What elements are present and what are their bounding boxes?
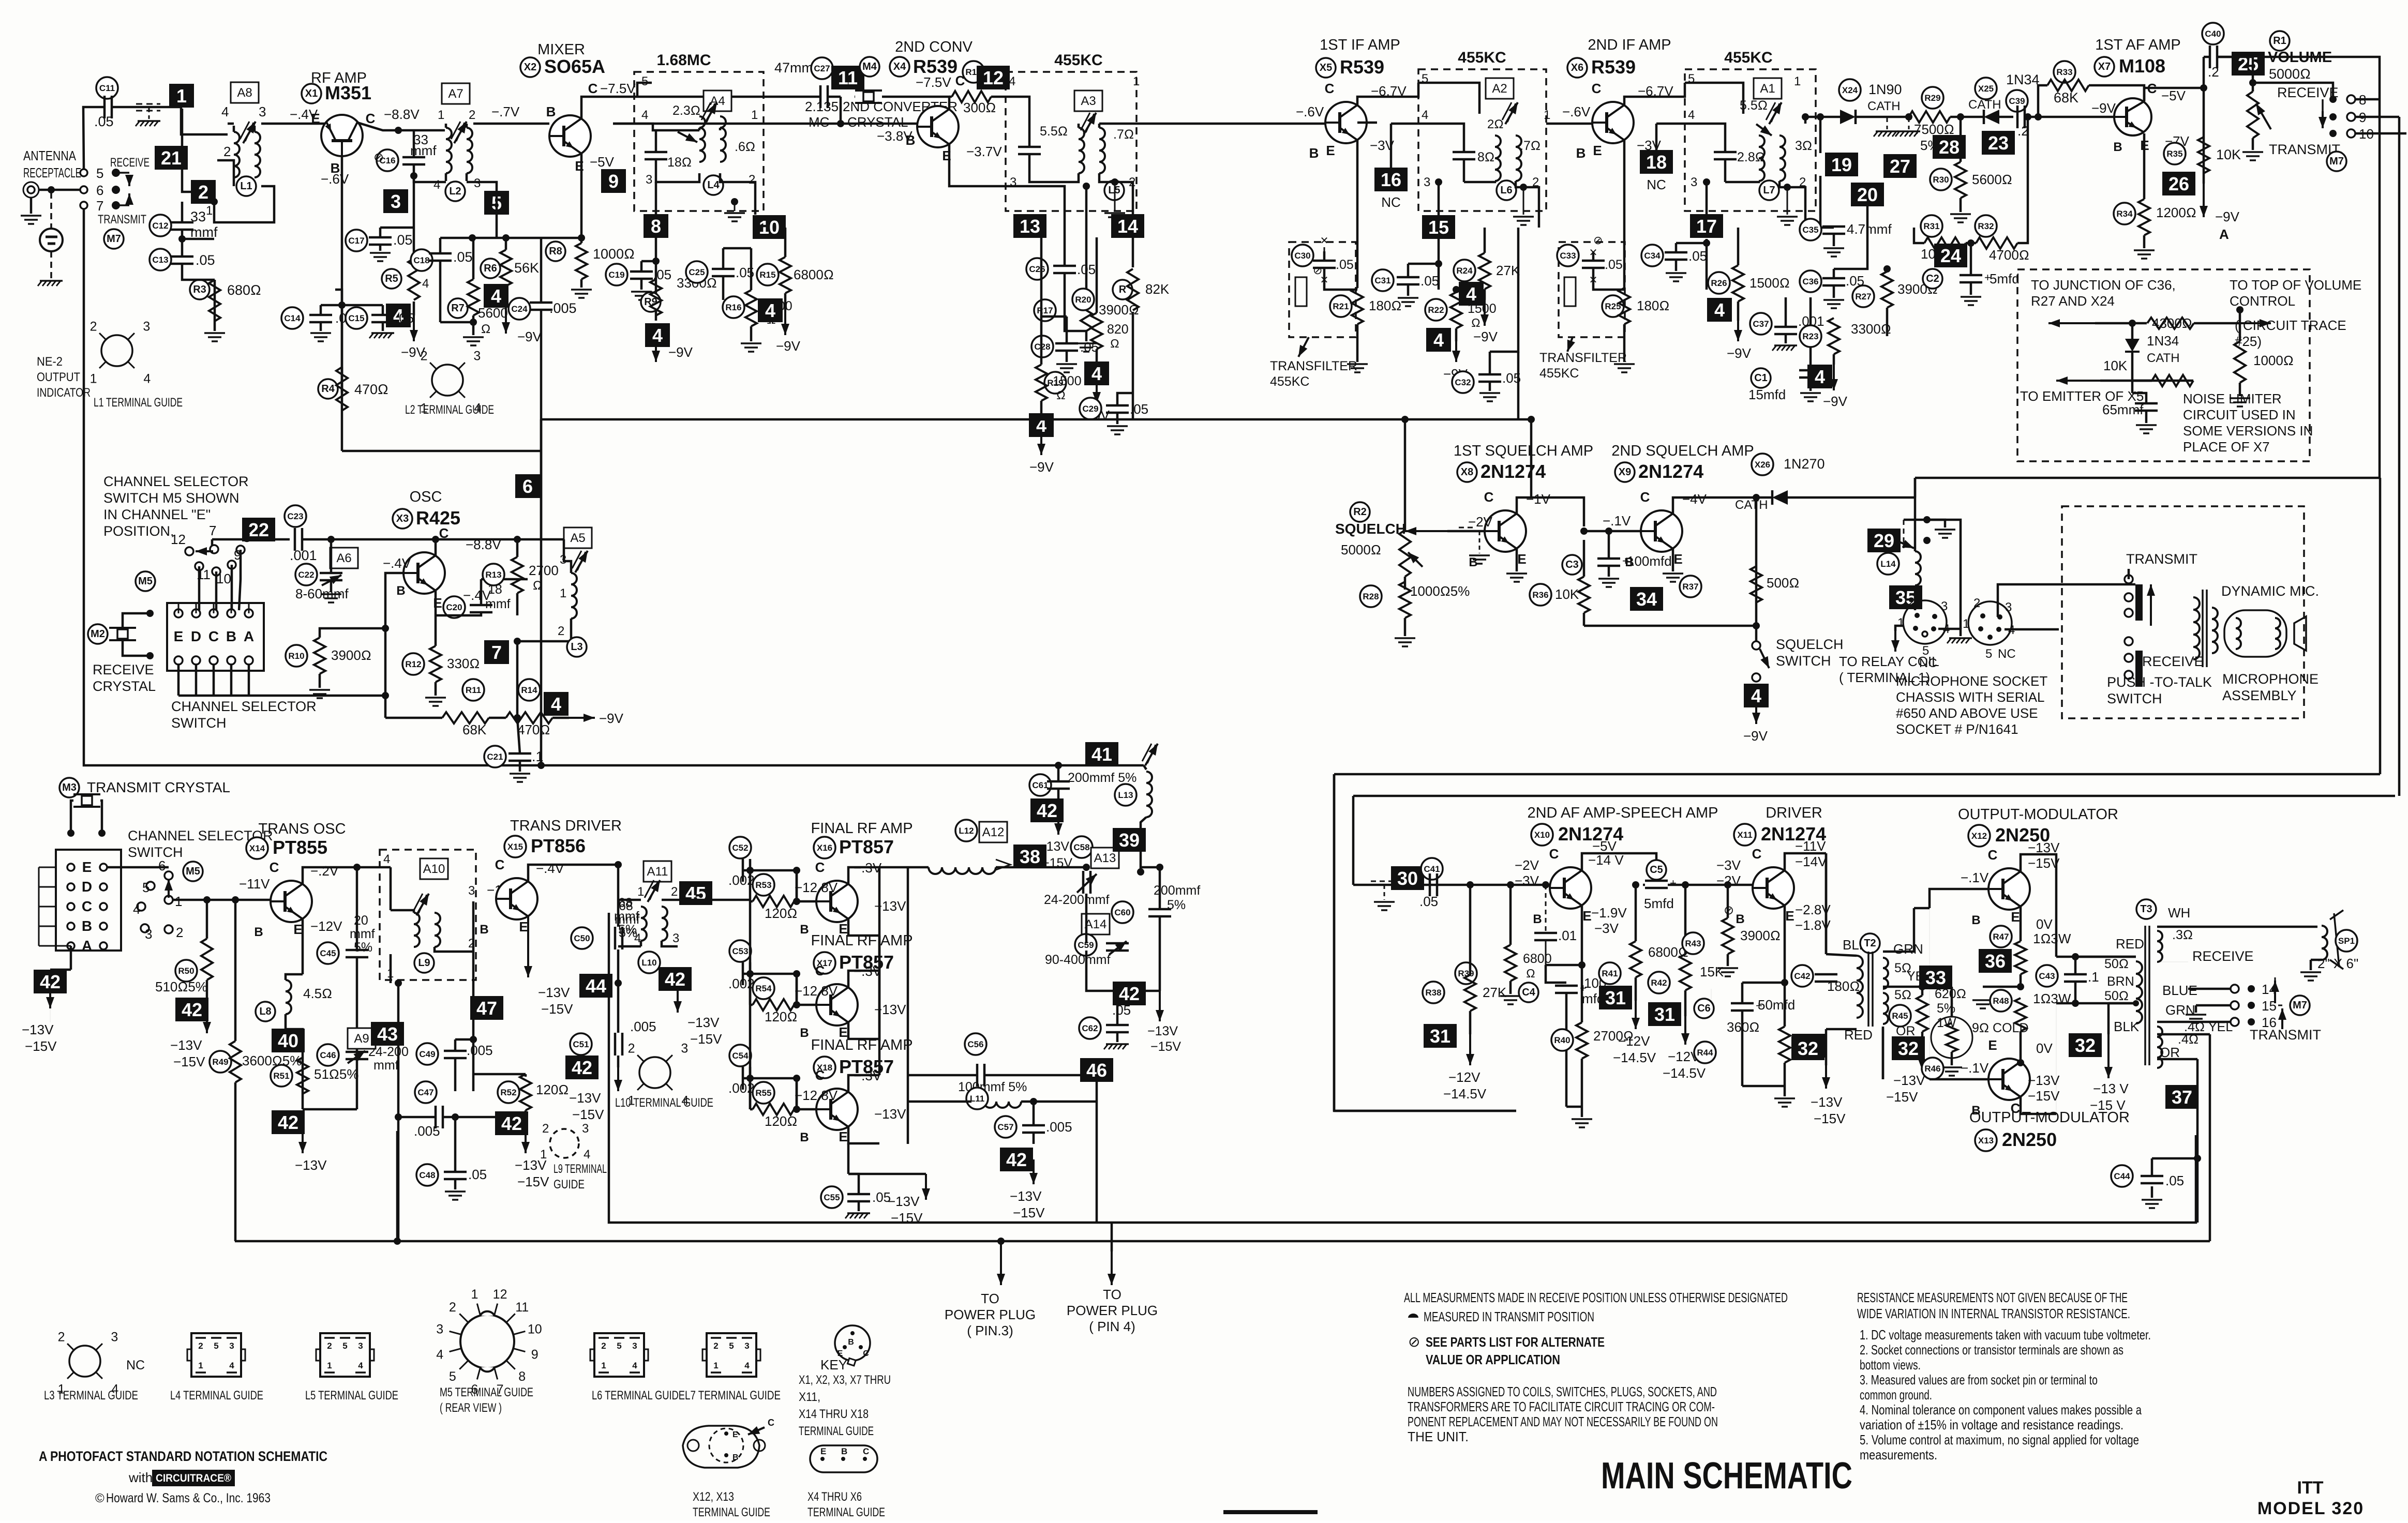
svg-text:C: C — [495, 857, 505, 872]
svg-text:−14V: −14V — [1795, 854, 1827, 869]
svg-text:POWER PLUG: POWER PLUG — [1067, 1303, 1158, 1318]
svg-text:C39: C39 — [2009, 96, 2025, 106]
svg-text:1: 1 — [637, 885, 644, 899]
svg-text:−5V: −5V — [2161, 88, 2186, 103]
svg-text:.005: .005 — [467, 1043, 493, 1058]
svg-text:SQUELCH: SQUELCH — [1335, 521, 1406, 537]
svg-text:CATH: CATH — [2147, 351, 2180, 365]
svg-text:5: 5 — [641, 74, 648, 88]
svg-text:3300Ω: 3300Ω — [1851, 321, 1891, 337]
svg-text:38: 38 — [1020, 846, 1040, 867]
svg-text:2" X 6": 2" X 6" — [2317, 956, 2358, 971]
svg-text:360Ω: 360Ω — [1727, 1019, 1759, 1035]
svg-text:3: 3 — [145, 926, 152, 942]
svg-text:T3: T3 — [2140, 903, 2152, 915]
svg-text:NC: NC — [1998, 647, 2016, 661]
svg-text:E: E — [839, 1129, 847, 1144]
svg-text:2ND IF AMP: 2ND IF AMP — [1588, 37, 1671, 53]
svg-text:L7 TERMINAL GUIDE: L7 TERMINAL GUIDE — [685, 1389, 781, 1403]
svg-text:B: B — [1309, 145, 1319, 161]
svg-text:C20: C20 — [446, 602, 462, 612]
svg-text:1: 1 — [175, 894, 182, 909]
svg-text:42: 42 — [1037, 800, 1057, 821]
svg-text:100mfd: 100mfd — [1627, 553, 1672, 569]
svg-text:1ST IF AMP: 1ST IF AMP — [1320, 37, 1400, 53]
svg-text:C: C — [1988, 847, 1998, 863]
svg-text:C33: C33 — [1560, 251, 1576, 261]
svg-text:12: 12 — [171, 532, 186, 547]
svg-text:2.8Ω: 2.8Ω — [1737, 150, 1765, 164]
svg-text:1: 1 — [471, 1287, 478, 1302]
svg-text:−14.5V: −14.5V — [1443, 1086, 1487, 1102]
svg-text:−.6V: −.6V — [321, 171, 349, 187]
svg-text:C19: C19 — [608, 270, 624, 280]
svg-text:SQUELCH: SQUELCH — [1776, 637, 1844, 652]
svg-text:−13V: −13V — [2028, 1073, 2060, 1088]
svg-text:mmf: mmf — [373, 1058, 399, 1073]
svg-text:4: 4 — [1422, 108, 1428, 122]
svg-text:R17: R17 — [1037, 306, 1053, 315]
svg-text:E: E — [1988, 1037, 1997, 1053]
svg-text:−13V: −13V — [295, 1157, 327, 1173]
svg-text:C31: C31 — [1374, 276, 1390, 285]
svg-text:POWER PLUG: POWER PLUG — [945, 1307, 1036, 1322]
svg-text:3: 3 — [1424, 175, 1430, 189]
svg-text:R47: R47 — [1993, 932, 2009, 942]
svg-text:−7.5V: −7.5V — [600, 81, 636, 96]
svg-text:5: 5 — [96, 165, 103, 181]
svg-text:⊘: ⊘ — [1408, 1334, 1420, 1350]
svg-text:M4: M4 — [862, 61, 877, 72]
svg-text:SP1: SP1 — [2338, 936, 2355, 946]
svg-text:C29: C29 — [1082, 404, 1098, 414]
svg-text:4: 4 — [133, 901, 140, 917]
svg-text:R33: R33 — [2056, 67, 2072, 77]
svg-text:SWITCH: SWITCH — [171, 715, 226, 731]
svg-text:+: + — [1670, 877, 1677, 889]
svg-text:TRANSFILTER: TRANSFILTER — [1539, 351, 1627, 365]
svg-text:−15V: −15V — [1013, 1205, 1045, 1220]
svg-text:R32: R32 — [1978, 221, 1994, 231]
svg-text:.1: .1 — [2088, 969, 2099, 985]
svg-text:MICROPHONE SOCKET: MICROPHONE SOCKET — [1896, 673, 2047, 689]
svg-text:GUIDE: GUIDE — [554, 1178, 585, 1192]
svg-text:SOCKET # P/N1641: SOCKET # P/N1641 — [1896, 721, 2018, 737]
svg-text:10: 10 — [759, 217, 780, 238]
svg-text:5mfd: 5mfd — [1990, 271, 2020, 286]
svg-text:L7: L7 — [1763, 185, 1775, 196]
svg-text:1: 1 — [1544, 108, 1550, 122]
svg-text:1000Ω: 1000Ω — [2253, 353, 2294, 368]
svg-text:.005: .005 — [414, 1123, 440, 1139]
svg-text:L4 TERMINAL GUIDE: L4 TERMINAL GUIDE — [170, 1389, 263, 1403]
svg-text:.05: .05 — [393, 232, 413, 248]
svg-text:−.1V: −.1V — [1961, 1060, 1989, 1076]
svg-text:VOLUME: VOLUME — [2268, 49, 2332, 66]
svg-text:27K: 27K — [1496, 263, 1520, 278]
svg-text:1: 1 — [327, 1361, 332, 1370]
svg-text:C24: C24 — [511, 304, 528, 314]
svg-text:−9V: −9V — [1029, 459, 1054, 475]
svg-text:R4: R4 — [321, 383, 335, 395]
svg-text:E: E — [293, 922, 302, 937]
svg-text:A1: A1 — [1760, 82, 1775, 96]
svg-text:common ground.: common ground. — [1860, 1387, 1932, 1403]
svg-text:TERMINAL GUIDE: TERMINAL GUIDE — [807, 1505, 885, 1519]
svg-text:2N250: 2N250 — [2002, 1129, 2057, 1150]
svg-text:−8.8V: −8.8V — [384, 107, 420, 122]
svg-text:−9V: −9V — [2215, 209, 2240, 224]
svg-text:.01: .01 — [1558, 928, 1577, 943]
svg-text:−2V: −2V — [1515, 857, 1539, 873]
svg-text:C4: C4 — [1522, 987, 1535, 998]
svg-text:−5V: −5V — [1592, 838, 1617, 854]
svg-text:1000Ω5%: 1000Ω5% — [1410, 583, 1470, 599]
svg-text:1: 1 — [1897, 616, 1904, 630]
svg-text:X25: X25 — [1978, 84, 1994, 94]
svg-text:23: 23 — [1988, 132, 2009, 154]
svg-text:1N270: 1N270 — [1784, 456, 1825, 472]
svg-text:R27: R27 — [1855, 292, 1871, 301]
svg-text:( PIN 4): ( PIN 4) — [1089, 1319, 1135, 1334]
svg-text:R30: R30 — [1933, 175, 1949, 185]
svg-text:−4V: −4V — [1682, 491, 1707, 507]
svg-text:C46: C46 — [320, 1050, 336, 1060]
svg-text:M5 TERMINAL GUIDE: M5 TERMINAL GUIDE — [440, 1385, 533, 1399]
svg-text:42: 42 — [501, 1113, 522, 1134]
svg-text:R11: R11 — [466, 685, 481, 695]
svg-text:R53: R53 — [755, 880, 771, 890]
svg-text:300Ω: 300Ω — [963, 100, 996, 115]
svg-text:PT855: PT855 — [273, 837, 327, 858]
svg-text:C17: C17 — [348, 236, 364, 246]
svg-text:X16: X16 — [817, 843, 832, 853]
svg-text:27K: 27K — [1483, 985, 1507, 1000]
svg-text:1: 1 — [90, 371, 97, 386]
svg-text:5.5Ω: 5.5Ω — [1740, 98, 1768, 113]
svg-text:−.1V: −.1V — [1961, 870, 1989, 885]
svg-text:−3V: −3V — [1594, 921, 1619, 936]
svg-text:R50: R50 — [178, 966, 194, 976]
svg-text:PT857: PT857 — [839, 836, 894, 857]
svg-text:31: 31 — [1654, 1004, 1675, 1025]
svg-text:−11V: −11V — [239, 876, 270, 892]
svg-text:50Ω: 50Ω — [2104, 989, 2129, 1003]
svg-text:3: 3 — [2005, 600, 2012, 614]
svg-text:180Ω: 180Ω — [1637, 298, 1669, 313]
svg-text:4: 4 — [1815, 366, 1825, 387]
svg-text:bottom views.: bottom views. — [1860, 1357, 1921, 1373]
svg-text:B: B — [1736, 912, 1744, 926]
svg-text:RECEIVE: RECEIVE — [2142, 654, 2204, 669]
svg-text:33: 33 — [190, 209, 206, 224]
svg-text:L4: L4 — [707, 179, 720, 191]
svg-text:12: 12 — [493, 1287, 507, 1302]
svg-text:−.7V: −.7V — [491, 104, 520, 119]
svg-text:R5: R5 — [385, 273, 398, 284]
svg-text:5: 5 — [617, 1341, 621, 1351]
svg-text:C: C — [815, 963, 825, 978]
svg-text:NE-2: NE-2 — [37, 355, 63, 369]
svg-text:4700Ω: 4700Ω — [1989, 247, 2029, 263]
svg-text:18Ω: 18Ω — [667, 155, 692, 170]
svg-text:4300Ω: 4300Ω — [2152, 315, 2192, 331]
svg-text:2N1274: 2N1274 — [1480, 461, 1546, 482]
svg-text:−14 V: −14 V — [1588, 852, 1624, 868]
svg-text:R37: R37 — [1682, 582, 1698, 592]
svg-text:A13: A13 — [1094, 851, 1116, 865]
svg-text:B: B — [480, 923, 488, 937]
svg-text:120Ω: 120Ω — [765, 1113, 797, 1129]
svg-text:( REAR VIEW ): ( REAR VIEW ) — [440, 1401, 502, 1415]
svg-text:4: 4 — [491, 285, 501, 307]
svg-text:.3Ω: .3Ω — [2172, 928, 2193, 942]
svg-text:5. Volume control at maximum: 5. Volume control at maximum, no signal … — [1860, 1432, 2139, 1447]
svg-text:.001: .001 — [290, 548, 317, 563]
svg-text:( CIRCUIT TRACE: ( CIRCUIT TRACE — [2235, 318, 2346, 333]
svg-text:5000Ω: 5000Ω — [2269, 66, 2311, 82]
svg-text:18: 18 — [1646, 152, 1667, 173]
svg-text:455KC: 455KC — [1539, 366, 1579, 381]
svg-text:NUMBERS ASSIGNED TO COILS, SW: NUMBERS ASSIGNED TO COILS, SWITCHES, PLU… — [1408, 1384, 1717, 1399]
svg-text:32: 32 — [1898, 1038, 1919, 1059]
svg-text:27: 27 — [1890, 156, 1910, 177]
svg-text:−15 V: −15 V — [2090, 1097, 2126, 1113]
svg-text:R45: R45 — [1892, 1011, 1908, 1021]
svg-text:32: 32 — [2075, 1035, 2096, 1056]
svg-text:PLACE OF X7: PLACE OF X7 — [2183, 439, 2270, 455]
svg-text:X1: X1 — [305, 88, 318, 99]
svg-text:TERMINAL GUIDE: TERMINAL GUIDE — [799, 1424, 874, 1438]
svg-text:.7Ω: .7Ω — [1520, 139, 1540, 153]
svg-text:C52: C52 — [732, 843, 748, 853]
svg-text:E: E — [1582, 908, 1591, 924]
svg-text:1: 1 — [198, 1361, 203, 1370]
svg-text:C51: C51 — [573, 1039, 589, 1049]
svg-text:CATH: CATH — [1867, 99, 1901, 113]
svg-text:X11,: X11, — [799, 1390, 820, 1404]
svg-text:2: 2 — [601, 1341, 606, 1351]
svg-text:M3: M3 — [62, 782, 77, 793]
svg-text:3600Ω5%: 3600Ω5% — [242, 1053, 302, 1068]
svg-text:X4: X4 — [893, 61, 906, 72]
svg-text:120Ω: 120Ω — [536, 1082, 569, 1097]
svg-text:CIRCUIT USED IN: CIRCUIT USED IN — [2183, 407, 2296, 423]
svg-text:3: 3 — [358, 1341, 363, 1351]
svg-text:30: 30 — [1397, 868, 1418, 889]
svg-text:4: 4 — [422, 277, 429, 291]
svg-text:C: C — [863, 1446, 869, 1456]
svg-text:SOME VERSIONS IN: SOME VERSIONS IN — [2183, 423, 2313, 439]
svg-text:DYNAMIC MIC.: DYNAMIC MIC. — [2221, 583, 2319, 599]
svg-text:1: 1 — [751, 108, 758, 122]
svg-text:POSITION.: POSITION. — [103, 523, 174, 539]
svg-text:X4 THRU X6: X4 THRU X6 — [807, 1490, 862, 1504]
svg-text:Ω: Ω — [1526, 967, 1535, 980]
svg-text:R: R — [1119, 284, 1127, 295]
svg-text:−2V: −2V — [1716, 873, 1741, 888]
svg-text:2: 2 — [90, 320, 97, 334]
svg-text:4: 4 — [1036, 415, 1046, 436]
svg-text:NC: NC — [126, 1358, 145, 1373]
svg-text:⊘: ⊘ — [373, 150, 384, 164]
svg-text:A: A — [2219, 227, 2229, 242]
svg-text:R44: R44 — [1697, 1048, 1713, 1058]
svg-text:TRANSMIT: TRANSMIT — [2250, 1027, 2321, 1043]
svg-text:INDICATOR: INDICATOR — [37, 386, 91, 400]
svg-text:R55: R55 — [755, 1088, 771, 1098]
svg-text:−9V: −9V — [1823, 394, 1848, 409]
svg-text:2: 2 — [198, 1341, 203, 1351]
svg-text:1: 1 — [540, 1148, 547, 1162]
svg-text:4: 4 — [765, 300, 775, 321]
svg-text:C57: C57 — [997, 1122, 1013, 1132]
svg-text:1: 1 — [601, 1361, 606, 1370]
svg-text:B: B — [800, 1026, 809, 1040]
svg-text:measurements.: measurements. — [1860, 1447, 1937, 1462]
svg-text:3: 3 — [468, 884, 475, 898]
svg-text:5600Ω: 5600Ω — [1972, 172, 2012, 187]
svg-text:−3V: −3V — [1716, 857, 1741, 873]
svg-text:50mfd: 50mfd — [1758, 997, 1795, 1013]
svg-text:Ω: Ω — [1110, 337, 1119, 350]
svg-text:A4: A4 — [710, 94, 725, 108]
svg-text:Ω: Ω — [1471, 316, 1480, 329]
svg-text:R23: R23 — [1802, 331, 1818, 341]
svg-text:2ND CONV: 2ND CONV — [895, 39, 973, 55]
svg-text:A10: A10 — [423, 862, 445, 876]
svg-text:4: 4 — [1688, 108, 1695, 122]
svg-text:Ω: Ω — [533, 579, 542, 593]
svg-text:B: B — [1576, 145, 1586, 161]
svg-text:R15: R15 — [759, 270, 775, 280]
svg-text:1500Ω: 1500Ω — [1749, 275, 1790, 291]
svg-text:OR: OR — [1896, 1024, 1916, 1038]
svg-text:330Ω: 330Ω — [447, 656, 480, 671]
svg-text:D: D — [191, 628, 201, 644]
svg-text:6: 6 — [158, 858, 166, 873]
svg-text:ALL MEASURMENTS MADE IN RECEIV: ALL MEASURMENTS MADE IN RECEIVE POSITION… — [1404, 1290, 1788, 1305]
svg-text:−13V: −13V — [874, 1106, 906, 1122]
svg-text:B: B — [800, 923, 809, 937]
svg-text:X12: X12 — [1971, 831, 1987, 841]
svg-text:C48: C48 — [419, 1170, 435, 1180]
svg-text:B: B — [546, 104, 556, 119]
svg-text:R52: R52 — [500, 1088, 516, 1097]
svg-text:51Ω5%: 51Ω5% — [314, 1066, 358, 1082]
svg-text:A PHOTOFACT STANDARD NOTATI: A PHOTOFACT STANDARD NOTATION SCHEMATIC — [39, 1449, 327, 1464]
svg-text:ASSEMBLY: ASSEMBLY — [2222, 688, 2297, 703]
svg-text:WIDE VARIATION IN INTERNAL T: WIDE VARIATION IN INTERNAL TRANSISTOR RE… — [1857, 1306, 2130, 1321]
svg-text:.05: .05 — [1130, 401, 1148, 417]
svg-text:C14: C14 — [284, 313, 301, 323]
svg-text:L9: L9 — [418, 957, 430, 969]
svg-text:C40: C40 — [2205, 29, 2221, 39]
svg-text:1: 1 — [560, 586, 566, 600]
svg-text:R2: R2 — [1353, 506, 1367, 518]
svg-text:NOISE LIMITER: NOISE LIMITER — [2183, 391, 2282, 406]
svg-text:21: 21 — [161, 147, 182, 169]
svg-text:11: 11 — [838, 67, 858, 88]
svg-text:M7: M7 — [107, 233, 121, 245]
svg-text:−11V: −11V — [1795, 838, 1826, 854]
svg-text:−15V: −15V — [572, 1107, 604, 1122]
svg-text:2: 2 — [58, 1330, 65, 1345]
svg-text:33: 33 — [1925, 967, 1946, 988]
svg-text:.005: .005 — [1046, 1119, 1072, 1135]
svg-text:R43: R43 — [1685, 939, 1701, 948]
svg-text:B: B — [226, 628, 236, 644]
svg-text:15K: 15K — [1700, 964, 1724, 979]
svg-text:.05: .05 — [1420, 273, 1439, 289]
svg-text:C13: C13 — [152, 255, 168, 265]
svg-text:470Ω: 470Ω — [517, 722, 550, 737]
svg-text:4: 4 — [143, 371, 151, 386]
svg-text:−13V: −13V — [170, 1037, 202, 1053]
svg-text:E: E — [1785, 908, 1794, 924]
svg-text:455KC: 455KC — [1458, 49, 1506, 66]
svg-text:MODEL 320: MODEL 320 — [2257, 1499, 2364, 1518]
svg-text:C1: C1 — [1754, 372, 1768, 384]
svg-text:3: 3 — [681, 1042, 688, 1056]
svg-text:MEASURED IN TRANSMIT POSITION: MEASURED IN TRANSMIT POSITION — [1424, 1309, 1594, 1324]
svg-text:R31: R31 — [1923, 221, 1939, 231]
svg-text:R28: R28 — [1363, 592, 1379, 601]
svg-text:120Ω: 120Ω — [765, 1009, 797, 1024]
svg-text:5: 5 — [449, 1369, 456, 1384]
svg-text:A6: A6 — [336, 551, 351, 565]
svg-text:⊘: ⊘ — [1593, 234, 1603, 247]
svg-text:−13V: −13V — [1039, 839, 1069, 854]
svg-text:X14 THRU X18: X14 THRU X18 — [799, 1407, 869, 1421]
svg-text:44: 44 — [586, 975, 606, 997]
svg-text:1. DC voltage measurements ta: 1. DC voltage measurements taken with va… — [1860, 1327, 2151, 1343]
svg-text:3: 3 — [646, 173, 652, 187]
svg-text:SWITCH: SWITCH — [1776, 653, 1831, 669]
svg-text:19: 19 — [1831, 154, 1852, 175]
svg-text:4: 4 — [229, 1361, 234, 1370]
svg-text:−8.8V: −8.8V — [466, 537, 501, 552]
svg-text:10: 10 — [216, 571, 231, 586]
svg-text:CATH: CATH — [1735, 498, 1768, 512]
svg-text:3: 3 — [1941, 599, 1948, 613]
svg-text:7: 7 — [491, 642, 502, 663]
svg-text:5%: 5% — [1167, 898, 1186, 912]
svg-text:14: 14 — [1117, 216, 1138, 237]
svg-text:0V: 0V — [2036, 916, 2053, 932]
svg-text:5: 5 — [1985, 647, 1992, 661]
svg-text:B: B — [848, 1338, 854, 1347]
svg-text:Howard W. Sams & Co., Inc. 19: Howard W. Sams & Co., Inc. 1963 — [106, 1491, 271, 1505]
svg-text:−.4V: −.4V — [290, 107, 318, 122]
svg-text:R539: R539 — [913, 56, 958, 77]
svg-text:4: 4 — [433, 178, 440, 192]
svg-text:Ω: Ω — [481, 322, 490, 336]
svg-text:10K: 10K — [2216, 147, 2241, 162]
svg-text:X8: X8 — [1461, 466, 1473, 478]
svg-text:.005: .005 — [549, 300, 577, 316]
svg-text:E: E — [1673, 551, 1682, 567]
svg-text:B: B — [841, 1446, 847, 1456]
svg-text:C43: C43 — [2039, 971, 2055, 981]
svg-text:A: A — [244, 628, 254, 644]
svg-text:−9V: −9V — [599, 711, 624, 726]
svg-text:4: 4 — [632, 1361, 637, 1370]
svg-text:−15V: −15V — [1814, 1111, 1846, 1126]
svg-text:PT856: PT856 — [531, 835, 586, 856]
svg-text:2: 2 — [198, 182, 208, 203]
svg-text:2: 2 — [1973, 596, 1980, 610]
